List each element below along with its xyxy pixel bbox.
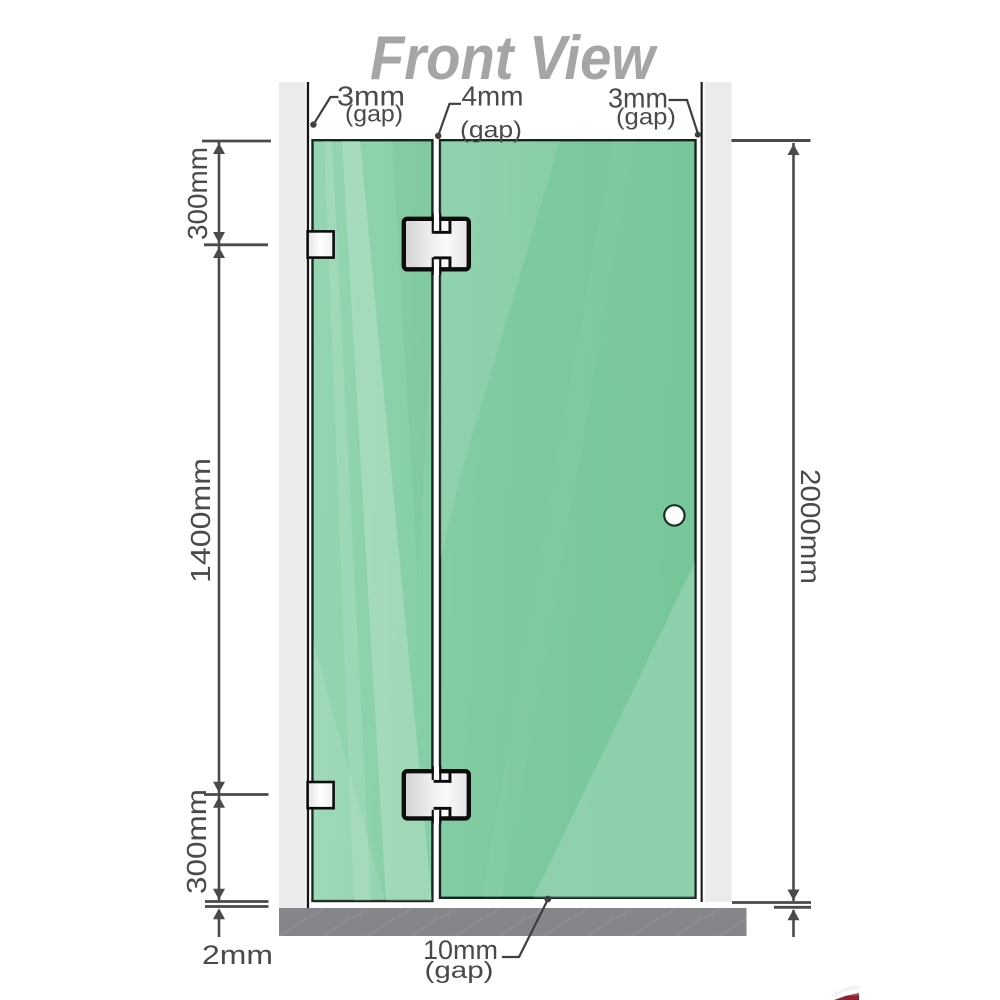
svg-text:(gap): (gap) xyxy=(425,957,494,983)
svg-text:(gap): (gap) xyxy=(345,101,403,127)
svg-text:(gap): (gap) xyxy=(460,117,522,143)
svg-text:2000mm: 2000mm xyxy=(795,469,826,584)
svg-text:300mm: 300mm xyxy=(181,789,212,894)
svg-text:2mm: 2mm xyxy=(202,940,273,970)
svg-text:(gap): (gap) xyxy=(616,104,676,130)
svg-text:1400mm: 1400mm xyxy=(185,458,216,583)
svg-text:300mm: 300mm xyxy=(182,147,213,240)
svg-text:4mm: 4mm xyxy=(462,81,524,112)
